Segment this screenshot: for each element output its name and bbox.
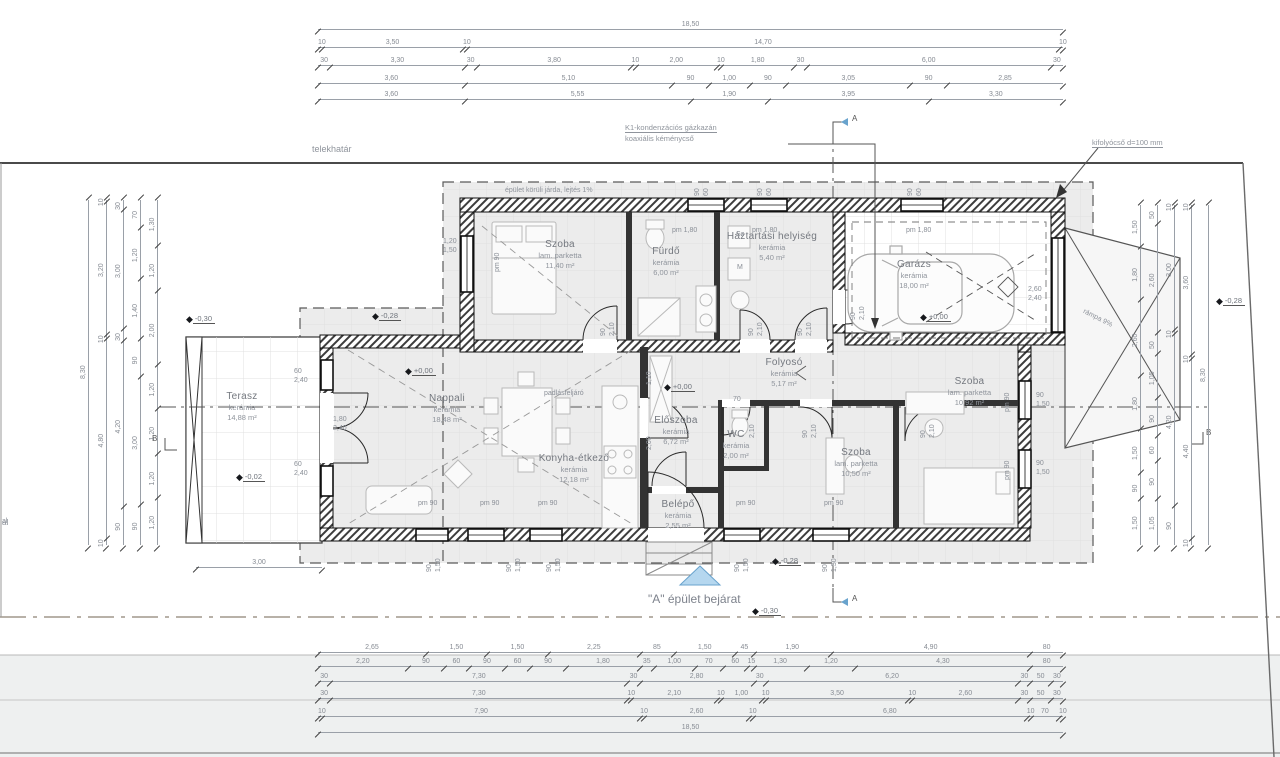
level-marker: ◆+0,00 [405,366,436,377]
plan-label: 2,40 [294,470,308,477]
dimension-segment: 80 [1030,643,1063,653]
dimension-segment: 10 [1059,38,1063,48]
dimension-value: 1,20 [807,658,856,665]
dimension-segment: 90 [672,74,709,84]
plan-label: pm 1,80 [752,227,777,234]
kazan-label-line2: koaxiális kéménycső [625,134,694,143]
dimension-segment: 1,20 [157,500,167,545]
plan-label: padlásfeljáró [544,390,584,397]
level-diamond-icon: ◆ [920,312,927,322]
dimension-value: 2,10 [631,690,716,697]
dimension-value: 1,80 [1132,249,1139,302]
dimension-segment: 2,00 [636,56,717,66]
dimension-row: 307,30102,10101,00103,50102,60305030 [318,689,1063,699]
dimension-value: 60 [1149,438,1156,463]
dimension-value: 30 [1018,690,1030,697]
room-belepo: Belépő kerámia 2,55 m² [645,498,711,531]
dimension-value: 3,50 [766,690,908,697]
dimension-segment: 7,30 [330,672,627,682]
dimension-value: 50 [1030,673,1050,680]
section-a-top: A [852,114,857,123]
dimension-value: 1,20 [149,456,156,501]
plan-label: 90 [920,430,927,438]
dimension-segment: 30 [754,672,766,682]
dimension-value: 1,80 [721,57,794,64]
level-diamond-icon: ◆ [772,556,779,566]
plan-label: 60 [294,461,302,468]
dimension-value: 35 [640,658,654,665]
level-value: -0,30 [759,606,781,616]
dimension-value: 80 [1030,658,1063,665]
dimension-value: 1,05 [1149,356,1156,400]
level-marker: ◆-0,30 [752,606,781,617]
dimension-segment: 3,50 [766,689,908,699]
dimension-segment: 3,60 [318,74,465,84]
dimension-segment: 1,20 [157,367,167,412]
floor-plan-sheet: Szoba lam. parketta 11,40 m² Fürdő kerám… [0,0,1280,757]
dimension-value: 50 [1030,690,1050,697]
dimension-segment: 60 [505,657,529,667]
dimension-segment: 5,55 [465,90,691,100]
dimension-segment: 1,90 [691,90,768,100]
level-diamond-icon: ◆ [186,314,193,324]
dimension-value: 2,25 [548,644,640,651]
room-konyha: Konyha-étkező kerámia 12,18 m² [518,452,630,485]
plan-label: pm 90 [538,500,557,507]
dimension-value: 7,90 [322,708,640,715]
plan-label: 90 [600,328,607,336]
dimension-value: 1,30 [149,200,156,248]
dimension-row: 18,50 [318,723,1063,733]
plan-label: M [737,264,743,271]
dimension-segment: 1,00 [709,74,750,84]
dimension-value: 50 [1149,335,1156,356]
level-value: -0,28 [379,311,401,321]
plan-label: 90 [822,564,829,572]
dimension-value: 3,60 [318,75,465,82]
plan-label: 1,10 [646,371,653,385]
dimension-value: 3,05 [786,75,910,82]
dimension-value: 3,50 [322,39,463,46]
edge-fragment-label: al [2,518,8,527]
dimension-value: 70 [1031,708,1059,715]
room-furdo: Fürdő kerámia 6,00 m² [630,245,702,278]
plan-label: 1,80 [333,416,347,423]
plan-label: 90 [734,564,741,572]
dimension-value: 70 [132,200,139,230]
dimension-value: 14,70 [467,39,1059,46]
dimension-segment: 90 [530,657,567,667]
street-bands [0,617,1280,757]
level-marker: ◆+0,00 [920,312,951,323]
plan-label: 1,50 [435,558,442,572]
plan-label: 2,10 [859,306,866,320]
dimension-segment: 30 [1018,689,1030,699]
dimension-value: 1,20 [149,248,156,293]
dimension-value: 4,20 [115,343,122,510]
dimension-value: 1,90 [754,644,831,651]
dimension-segment: 7,90 [322,707,640,717]
dimension-segment: 2,20 [318,657,408,667]
plan-label: 90 [1036,460,1044,467]
plan-label: 1,50 [443,247,457,254]
dimension-value: 1,05 [1149,501,1156,545]
dimension-segment: 50 [1030,689,1050,699]
dimension-value: 3,00 [1166,209,1173,332]
plan-label: 1,50 [1036,401,1050,408]
dimension-value: 30 [1051,673,1063,680]
dimension-value: 30 [1051,690,1063,697]
dimension-value: 2,60 [644,708,749,715]
dimension-value: 10 [1183,541,1190,545]
dimension-value: 90 [408,658,445,665]
dimension-segment: 2,85 [947,74,1063,84]
dimension-value: 2,85 [947,75,1063,82]
plan-label: 2,40 [294,377,308,384]
dimension-value: 2,60 [1149,226,1156,335]
dimension-segment: 2,10 [631,689,716,699]
level-value: -0,02 [243,472,265,482]
plan-label: 60 [916,188,923,196]
dimension-segment: 1,20 [157,248,167,293]
plan-label: 1,50 [831,558,838,572]
dimension-segment: 18,50 [318,723,1063,733]
dimension-value: 2,60 [912,690,1018,697]
dimension-value: 30 [794,57,806,64]
plan-label: pm 1,80 [906,227,931,234]
plan-label: 2,10 [757,322,764,336]
level-value: -0,30 [193,314,215,324]
dimension-value: 90 [1166,508,1173,545]
dimension-value: 1,00 [654,658,695,665]
dimension-value: 3,00 [132,379,139,507]
dimension-segment: 2,80 [640,672,754,682]
dimension-segment: 10 [1059,707,1063,717]
dimension-value: 6,00 [807,57,1051,64]
dimension-value: 1,20 [149,367,156,412]
dimension-value: 60 [444,658,468,665]
dimension-value: 90 [132,507,139,545]
room-nappali: Nappali kerámia 18,48 m² [403,392,491,425]
dimension-value: 4,30 [855,658,1030,665]
dimension-segment: 1,90 [754,643,831,653]
dimension-value: 3,30 [330,57,464,64]
dimension-segment: 7,30 [330,689,627,699]
dimension-value: 7,30 [330,673,627,680]
level-marker: ◆-0,28 [772,556,801,567]
jarda-label: épület körüli járda, lejtés 1% [505,187,593,194]
dimension-value: 10 [98,541,105,545]
dimension-value: 4,40 [1183,361,1190,541]
dimension-value: 7,30 [330,690,627,697]
level-marker: ◆-0,02 [236,472,265,483]
dimension-value: 2,80 [640,673,754,680]
dimension-value: 1,50 [674,644,735,651]
dimension-column: 8,30 [88,200,98,545]
dimension-value: 2,60 [1132,302,1139,378]
room-szoba-2: Szoba lam. parketta 10,50 m² [812,446,900,479]
level-marker: ◆-0,28 [372,311,401,322]
dimension-value: 4,80 [98,341,105,541]
level-value: +0,00 [671,382,695,392]
plan-label: 90 [757,188,764,196]
section-a-bottom: A [852,594,857,603]
dimension-value: 30 [754,673,766,680]
dimension-value: 30 [1051,57,1063,64]
dimension-value: 1,20 [149,411,156,456]
dimension-value: 85 [640,644,675,651]
plan-label: pm 90 [418,500,437,507]
plan-label: pm 90 [1004,461,1011,480]
level-diamond-icon: ◆ [236,472,243,482]
level-diamond-icon: ◆ [405,366,412,376]
dimension-value: 90 [910,75,947,82]
room-szoba-1: Szoba lam. parketta 11,40 m² [505,238,615,271]
dimension-value: 2,65 [318,644,426,651]
level-marker: ◆-0,30 [186,314,215,325]
dimension-value: 90 [115,509,122,545]
dimension-segment: 30 [627,672,639,682]
dimension-segment: 30 [1051,689,1063,699]
dimension-segment: 30 [465,56,477,66]
dimension-segment: 30 [1018,672,1030,682]
dimension-value: 18,50 [318,21,1063,28]
plan-label: 2,40 [1028,295,1042,302]
dimension-value: 5,55 [465,91,691,98]
dimension-value: 18,50 [318,724,1063,731]
plan-label: 90 [748,328,755,336]
dimension-segment: 1,80 [721,56,794,66]
dimension-value: 90 [672,75,709,82]
dimension-value: 60 [505,658,529,665]
room-szoba-3: Szoba lam. parketta 10,92 m² [922,375,1017,408]
dimension-value: 1,20 [149,500,156,545]
plan-label: pm 90 [480,500,499,507]
level-diamond-icon: ◆ [372,311,379,321]
plan-label: 2,10 [749,424,756,438]
dimension-segment: 4,90 [831,643,1030,653]
dimension-segment: 50 [1030,672,1050,682]
dimension-value: 3,60 [1183,209,1190,356]
plan-label: 1,50 [1036,469,1050,476]
dimension-value: 90 [530,658,567,665]
dimension-segment: 1,80 [566,657,639,667]
dimension-segment: 80 [1030,657,1063,667]
plan-label: 2,10 [806,322,813,336]
dimension-value: 6,20 [766,673,1018,680]
dimension-value: 2,00 [149,293,156,367]
dimension-segment: 90 [910,74,947,84]
dimension-segment: 3,30 [929,90,1063,100]
plan-label: 90 [1036,392,1044,399]
dimension-row: 3,00 [196,558,322,568]
dimension-value: 1,50 [1132,205,1139,249]
dimension-value: 30 [1018,673,1030,680]
dimension-value: 5,10 [465,75,673,82]
dimension-segment: 2,00 [157,293,167,367]
dimension-value: 1,20 [132,230,139,281]
dimension-row: 307,30302,80306,20305030 [318,672,1063,682]
dimension-value: 60 [723,658,747,665]
dimension-value: 1,30 [754,658,807,665]
dimension-value: 70 [695,658,724,665]
dimension-value: 10 [1059,39,1063,46]
dimension-value: 1,80 [1132,378,1139,431]
dimension-value: 30 [318,690,330,697]
plan-label: pm 90 [736,500,755,507]
dimension-value: 45 [735,644,753,651]
dimension-segment: 3,50 [322,38,463,48]
dimension-segment: 30 [318,672,330,682]
plan-label: pm 1,80 [672,227,697,234]
dimension-segment: 1,20 [807,657,856,667]
plan-label: 2,10 [929,424,936,438]
kifolyocso-label: kifolyócső d=100 mm [1092,138,1163,148]
dimension-column: 8,30 [1208,205,1218,545]
level-marker: ◆-0,28 [1216,296,1245,307]
dimension-segment: 1,50 [674,643,735,653]
dimension-value: 3,00 [115,212,122,331]
dimension-segment: 2,60 [912,689,1018,699]
dimension-value: 3,60 [318,91,465,98]
dimension-value: 3,80 [477,57,632,64]
dimension-row: 2,651,501,502,25851,50451,904,9080 [318,643,1063,653]
level-diamond-icon: ◆ [1216,296,1223,306]
dimension-segment: 6,20 [766,672,1018,682]
dimension-segment: 3,05 [786,74,910,84]
dimension-value: 1,50 [1132,431,1139,475]
dimension-row: 103,501014,7010 [318,38,1063,48]
dimension-segment: 1,20 [157,411,167,456]
telekhatar-label: telekhatár [312,144,352,154]
plan-label: 70 [733,396,741,403]
dimension-segment: 5,10 [465,74,673,84]
dimension-value: 3,00 [196,559,322,566]
dimension-segment: 60 [723,657,747,667]
dimension-value: 90 [469,658,506,665]
dimension-segment: 8,30 [1208,205,1218,545]
dimension-row: 303,30303,80102,00101,80306,0030 [318,56,1063,66]
dimension-value: 90 [1149,463,1156,501]
dimension-value: 1,50 [1132,501,1139,545]
plan-label: 60 [294,368,302,375]
dimension-segment: 3,30 [330,56,464,66]
plan-label: 90 [797,328,804,336]
plan-label: 1,50 [555,558,562,572]
plan-label: 2,10 [811,424,818,438]
dimension-segment: 14,70 [467,38,1059,48]
dimension-value: 2,20 [318,658,408,665]
dimension-segment: 90 [750,74,787,84]
dimension-row: 107,90102,60106,80107010 [318,707,1063,717]
dimension-value: 1,00 [709,75,750,82]
dimension-value: 3,20 [98,204,105,337]
dimension-segment: 70 [695,657,724,667]
dimension-segment: 45 [735,643,753,653]
dimension-value: 30 [318,57,330,64]
level-value: +0,00 [927,312,951,322]
room-garazs: Garázs kerámia 18,00 m² [878,258,950,291]
room-terasz: Terasz kerámia 14,88 m² [203,390,281,423]
dimension-value: 8,30 [80,200,87,545]
dimension-value: 1,80 [566,658,639,665]
plan-label: 90 [850,312,857,320]
dimension-row: 3,605,10901,00903,05902,85 [318,74,1063,84]
dimension-row: 3,605,551,903,953,30 [318,90,1063,100]
plan-label: 1,50 [515,558,522,572]
dimension-segment: 6,80 [753,707,1027,717]
plan-label: 60 [703,188,710,196]
dimension-segment: 1,20 [157,456,167,501]
dimension-value: 90 [132,341,139,379]
dimension-segment: 3,80 [477,56,632,66]
dimension-segment: 35 [640,657,654,667]
dimension-value: 50 [1149,205,1156,226]
dimension-value: 30 [627,673,639,680]
plan-label: 2,10 [609,322,616,336]
plan-label: 1,50 [743,558,750,572]
dimension-segment: 8,30 [88,200,98,545]
plan-label: pm 90 [824,500,843,507]
dimension-value: 3,95 [768,91,929,98]
plan-label: 1,20 [443,238,457,245]
dimension-value: 30 [465,57,477,64]
plan-label: 60 [766,188,773,196]
dimension-segment: 2,65 [318,643,426,653]
bejarat-label: "A" épület bejárat [648,592,741,606]
dimension-segment: 1,00 [654,657,695,667]
dimension-value: 90 [1132,475,1139,501]
dimension-segment: 1,30 [157,200,167,248]
dimension-segment: 60 [444,657,468,667]
dimension-segment: 90 [469,657,506,667]
room-folyoso: Folyosó kerámia 5,17 m² [748,356,820,389]
plan-label: 90 [694,188,701,196]
dimension-segment: 3,95 [768,90,929,100]
level-diamond-icon: ◆ [752,606,759,616]
dimension-segment: 18,50 [318,20,1063,30]
dimension-value: 1,90 [691,91,768,98]
dimension-value: 6,80 [753,708,1027,715]
dimension-segment: 1,50 [487,643,548,653]
dimension-segment: 1,50 [426,643,487,653]
dimension-value: 4,90 [831,644,1030,651]
dimension-segment: 30 [318,689,330,699]
level-value: -0,28 [779,556,801,566]
dimension-segment: 70 [1031,707,1059,717]
dimension-row: 18,50 [318,20,1063,30]
dimension-column: 1,301,202,001,201,201,201,20 [157,200,167,545]
dimension-value: 1,50 [426,644,487,651]
dimension-segment: 30 [1051,56,1063,66]
plan-label: pm 90 [1004,393,1011,412]
dimension-row: 2,2090609060901,80351,007060151,301,204,… [318,657,1063,667]
dimension-segment: 2,60 [644,707,749,717]
dimension-segment: 30 [794,56,806,66]
dimension-value: 80 [1030,644,1063,651]
dimension-segment: 90 [408,657,445,667]
plan-label: pm 90 [494,253,501,272]
level-value: +0,00 [412,366,436,376]
plan-label: Sz [736,231,744,238]
dimension-value: 1,40 [132,281,139,341]
plan-label: 90 [546,564,553,572]
plan-label: 90 [907,188,914,196]
level-diamond-icon: ◆ [664,382,671,392]
dimension-value: 90 [750,75,787,82]
plan-label: 2,00 [646,436,653,450]
level-marker: ◆+0,00 [664,382,695,393]
